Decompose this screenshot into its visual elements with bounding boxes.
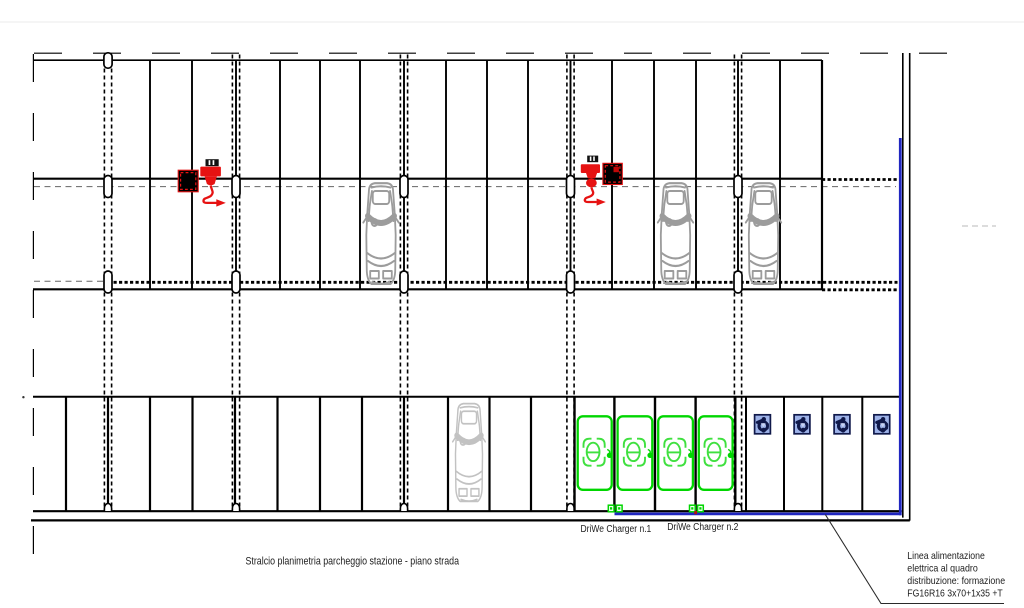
- svg-text:FG16R16 3x70+1x35 +T: FG16R16 3x70+1x35 +T: [907, 589, 1003, 600]
- svg-text:distribuzione: formazione: distribuzione: formazione: [907, 576, 1005, 587]
- svg-text:DriWe Charger n.2: DriWe Charger n.2: [667, 522, 739, 533]
- svg-text:elettrica al quadro: elettrica al quadro: [907, 564, 978, 575]
- svg-text:DriWe Charger n.1: DriWe Charger n.1: [581, 524, 652, 535]
- svg-text:Stralcio planimetria parcheggi: Stralcio planimetria parcheggio stazione…: [246, 556, 460, 568]
- svg-text:Linea alimentazione: Linea alimentazione: [907, 551, 985, 562]
